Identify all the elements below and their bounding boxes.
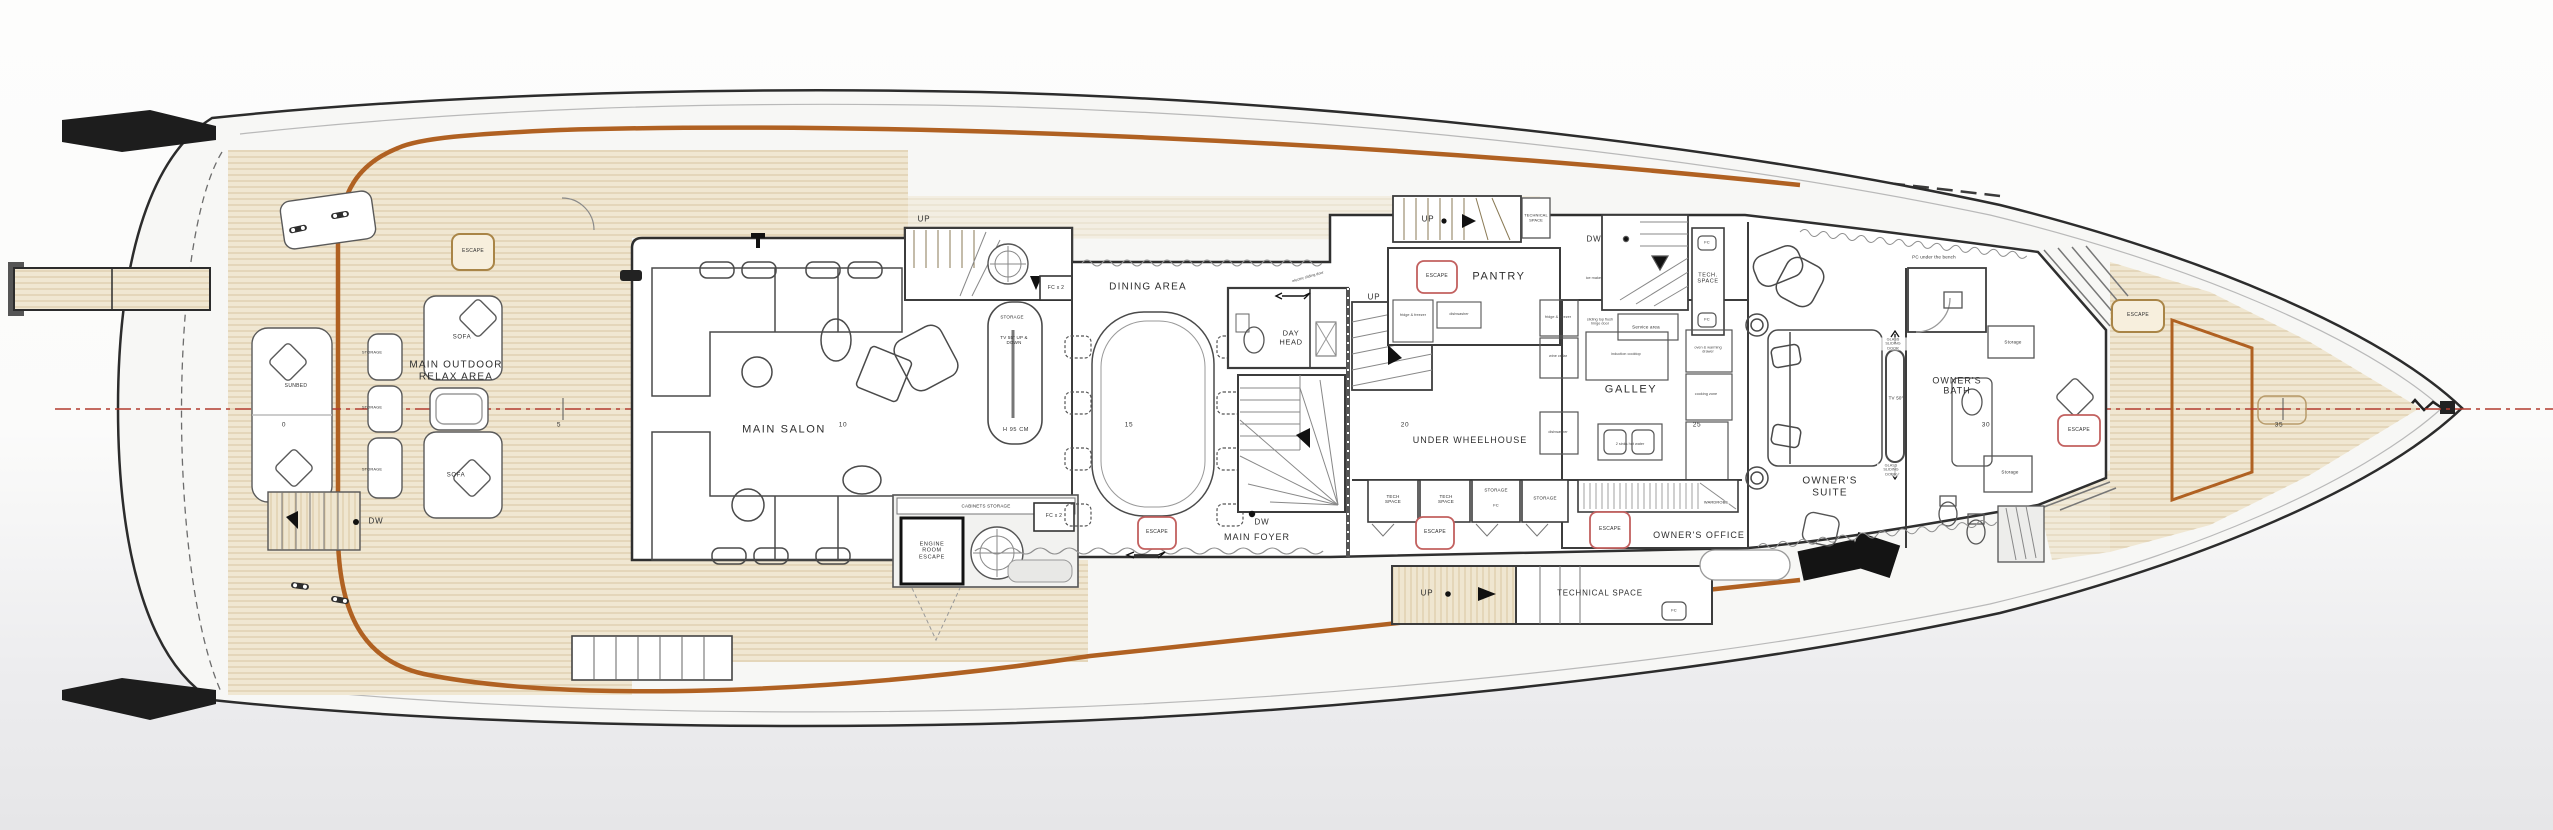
dw-label-aft-deck: DW	[369, 516, 384, 525]
escape-label-foredeck: ESCAPE	[2127, 313, 2149, 319]
room-label-technical-space: TECHNICAL SPACE	[1557, 588, 1643, 597]
room-label-dining-area: DINING AREA	[1109, 281, 1187, 293]
room-label-technical-space-small: TECHNICAL SPACE	[1523, 213, 1549, 222]
room-label-tech-space-2: TECH SPACE	[1432, 494, 1460, 504]
galley-note-7: oven & warming drawer	[1690, 346, 1726, 355]
glass-sliding-door-note-top: GLASS SLIDING DOOR	[1879, 337, 1907, 350]
galley-note-2: wine cellar	[1543, 354, 1573, 358]
storage-console-3: STORAGE	[362, 468, 382, 473]
fc-label-storage: FC	[1492, 504, 1500, 509]
wardrobe-label: WARDROBE	[1703, 501, 1729, 506]
room-label-main-outdoor-relax-area: MAIN OUTDOOR RELAX AREA	[397, 360, 515, 383]
tv50-note: TV 50"	[1889, 395, 1904, 400]
pantry-note-2: dishwasher	[1444, 312, 1474, 316]
storage-tv-console: STORAGE	[1000, 314, 1023, 319]
galley-note-8: cooking zone	[1691, 392, 1721, 396]
up-label-aft-sidedeck: UP	[1421, 588, 1434, 597]
escape-label-aft: ESCAPE	[462, 249, 484, 255]
station-10: 10	[839, 421, 847, 428]
tv55-label: TV 55" UP & DOWN	[998, 335, 1030, 345]
up-label-salon-stairs: UP	[918, 214, 931, 223]
storage-console-1: STORAGE	[362, 351, 382, 356]
up-label-sidedeck-stairs: UP	[1422, 214, 1435, 223]
service-area-note: Service area	[1631, 324, 1661, 329]
room-label-owners-bath: OWNER'S BATH	[1929, 376, 1985, 397]
galley-note-9: 2 sinks hot water	[1613, 442, 1647, 446]
storage-note-bath-bottom: Storage	[2001, 469, 2018, 474]
room-label-owners-office: OWNER'S OFFICE	[1653, 530, 1745, 540]
foyer-stairs	[1238, 375, 1345, 517]
storage-console-2: STORAGE	[362, 406, 382, 411]
escape-label-office: ESCAPE	[1599, 527, 1621, 533]
room-label-pantry: PANTRY	[1472, 271, 1525, 284]
room-label-day-head: DAY HEAD	[1270, 329, 1312, 346]
room-label-galley: GALLEY	[1605, 384, 1657, 397]
storage-note-bath-top: Storage	[2004, 339, 2021, 344]
engine-room-escape-label: ENGINE ROOM ESCAPE	[910, 542, 954, 561]
room-label-tech-space-column: TECH. SPACE	[1692, 273, 1724, 286]
technical-space-room	[1392, 566, 1712, 624]
room-label-storage-1: STORAGE	[1484, 487, 1507, 492]
fcx2-label-bottom: FC x 2	[1046, 514, 1063, 520]
dw-label-foyer: DW	[1255, 517, 1270, 526]
room-label-main-foyer: MAIN FOYER	[1224, 532, 1290, 542]
escape-label-pantry: ESCAPE	[1426, 274, 1448, 280]
escape-label-bath: ESCAPE	[2068, 428, 2090, 434]
sunbed-label: SUNBED	[284, 384, 309, 390]
room-label-main-salon: MAIN SALON	[742, 424, 826, 437]
pc-under-bench-note: PC under the bench	[1911, 254, 1957, 259]
sofa-label-bottom: SOFA	[447, 473, 465, 480]
glass-sliding-door-note-bottom: GLASS SLIDING DOOR	[1877, 463, 1905, 476]
pantry-note-1: fridge & freezer	[1396, 313, 1430, 317]
fcx2-label-top: FC x 2	[1048, 286, 1065, 292]
station-15: 15	[1125, 421, 1133, 428]
dw-label-galley: DW	[1587, 234, 1602, 243]
station-0: 0	[282, 421, 286, 428]
station-25: 25	[1693, 421, 1701, 428]
galley-note-3: dishwasher	[1543, 430, 1573, 434]
up-label-wheelhouse-stairs: UP	[1368, 292, 1381, 301]
station-20: 20	[1401, 421, 1409, 428]
passerelle	[8, 262, 210, 316]
station-35: 35	[2275, 421, 2283, 428]
galley-note-5: sliding top flush hinge door	[1583, 318, 1617, 327]
room-label-owners-suite: OWNER'S SUITE	[1797, 476, 1863, 499]
room-label-tech-space-1: TECH SPACE	[1379, 494, 1407, 504]
room-label-under-wheelhouse: UNDER WHEELHOUSE	[1413, 435, 1528, 445]
fc-note-sidedeck: FC	[1671, 609, 1677, 614]
fc-note-tech-1: FC	[1704, 241, 1710, 246]
escape-label-dining: ESCAPE	[1146, 530, 1168, 536]
station-30: 30	[1982, 421, 1990, 428]
fc-note-tech-2: FC	[1704, 318, 1710, 323]
sofa-label-top: SOFA	[453, 335, 471, 342]
h95-label: H 95 CM	[1003, 427, 1029, 433]
room-label-storage-2: STORAGE	[1533, 495, 1556, 500]
station-5: 5	[557, 421, 561, 428]
galley-note-6: induction cooktop	[1609, 352, 1643, 356]
plan-drawing	[0, 0, 2553, 830]
galley-note-1: fridge & freezer	[1543, 315, 1573, 319]
escape-label-corridor: ESCAPE	[1424, 530, 1446, 536]
cabinets-storage-label: CABINETS STORAGE	[962, 503, 1011, 508]
galley-note-4: ice maker	[1579, 276, 1609, 280]
deck-plan: MAIN OUTDOOR RELAX AREA MAIN SALON DININ…	[0, 0, 2553, 830]
